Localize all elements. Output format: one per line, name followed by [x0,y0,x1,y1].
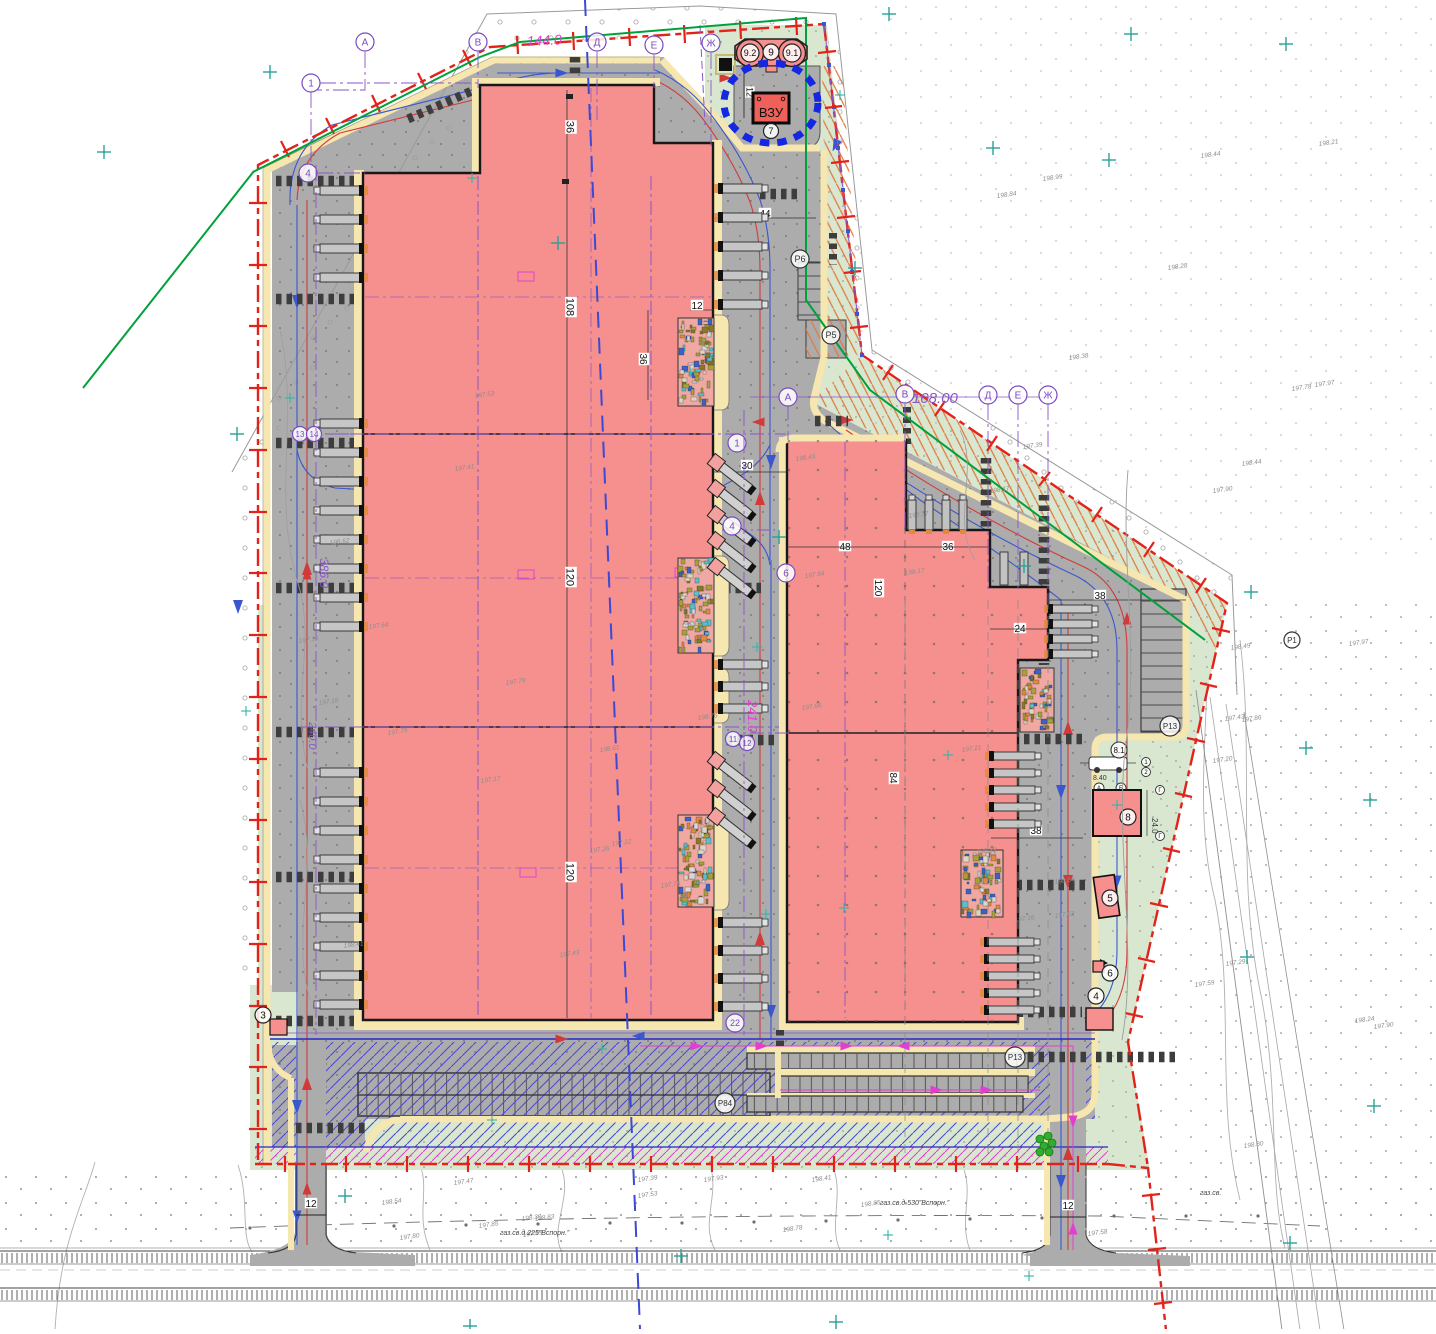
svg-text:Р13: Р13 [1163,722,1178,731]
svg-text:108: 108 [564,298,576,316]
svg-text:Р6: Р6 [794,254,805,264]
svg-text:84: 84 [887,772,898,784]
svg-text:120: 120 [564,568,576,586]
svg-text:Е: Е [1015,391,1022,402]
svg-text:9: 9 [768,48,774,59]
svg-text:Д: Д [594,38,601,49]
svg-text:7: 7 [768,126,773,136]
svg-text:Ж: Ж [706,39,716,50]
svg-text:А: А [362,38,369,49]
svg-text:240.0: 240.0 [306,721,318,750]
svg-text:Д: Д [985,391,992,402]
svg-text:120: 120 [564,863,576,881]
svg-text:30: 30 [741,461,753,472]
svg-text:8: 8 [1125,813,1131,824]
svg-text:газ.св.д.225”Вспорн.”: газ.св.д.225”Вспорн.” [500,1229,570,1237]
svg-text:13: 13 [296,430,305,439]
svg-text:4: 4 [729,522,735,533]
svg-text:6: 6 [1107,969,1113,980]
svg-text:ВЗУ: ВЗУ [759,105,784,120]
svg-text:1: 1 [308,79,314,90]
svg-text:1: 1 [734,439,740,450]
svg-text:48: 48 [839,542,851,553]
svg-text:8.40: 8.40 [1093,775,1107,782]
svg-text:144.0: 144.0 [526,31,562,49]
svg-text:В: В [902,390,909,401]
svg-text:В: В [475,38,482,49]
svg-text:108.00: 108.00 [912,390,959,407]
svg-text:36: 36 [564,121,576,133]
svg-text:Р84: Р84 [718,1099,733,1108]
svg-text:386.0: 386.0 [317,558,331,588]
svg-text:9.1: 9.1 [786,48,799,58]
svg-text:3: 3 [260,1011,266,1022]
svg-text:5: 5 [1107,894,1113,905]
svg-text:12: 12 [305,1199,317,1210]
svg-text:Ж: Ж [1043,391,1053,402]
svg-text:Р13: Р13 [1008,1053,1023,1062]
svg-text:4: 4 [305,169,311,180]
svg-text:Р5: Р5 [825,330,836,340]
svg-text:А: А [785,393,792,404]
svg-text:6: 6 [783,569,789,580]
svg-text:12: 12 [1062,1201,1074,1212]
svg-text:9.2: 9.2 [744,48,757,58]
svg-text:22: 22 [730,1018,740,1028]
svg-text:11: 11 [729,735,738,744]
svg-text:14: 14 [310,430,319,439]
svg-text:24: 24 [1014,624,1026,635]
svg-text:8.1: 8.1 [1113,746,1125,755]
svg-text:4: 4 [1093,992,1099,1003]
svg-text:газ.св.: газ.св. [1200,1190,1221,1197]
svg-text:120: 120 [872,580,883,597]
svg-text:36: 36 [637,353,648,365]
svg-text:Е: Е [651,41,658,52]
svg-text:газ.св.д.530”Вспорн.”: газ.св.д.530”Вспорн.” [880,1199,950,1207]
svg-text:12: 12 [691,301,703,312]
svg-text:36: 36 [942,542,954,553]
svg-text:241.0: 241.0 [745,699,760,733]
svg-text:Р1: Р1 [1287,636,1297,645]
